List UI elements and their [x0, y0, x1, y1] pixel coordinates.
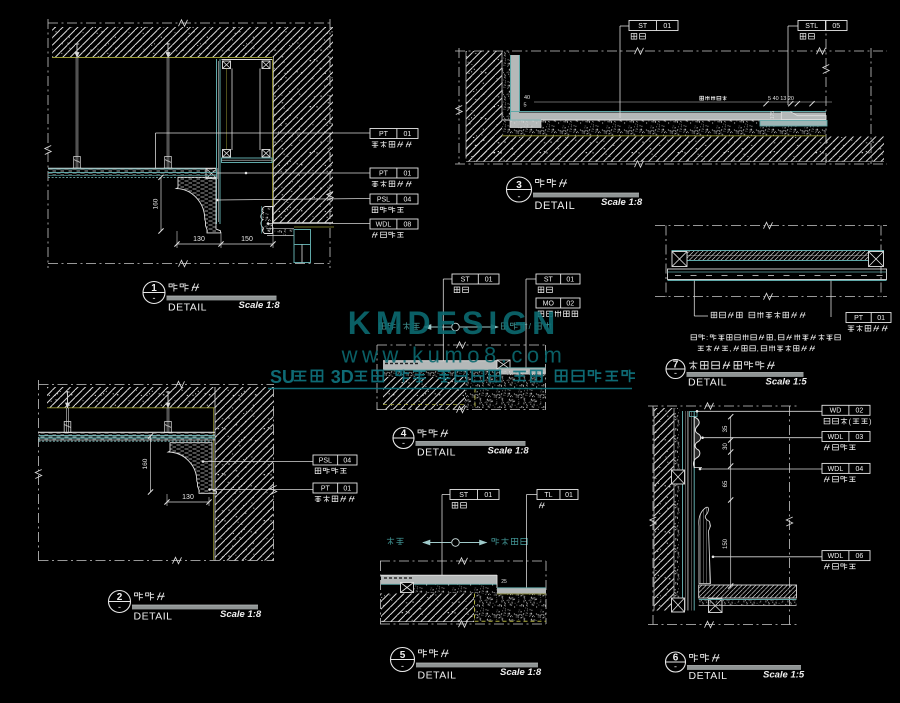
svg-text:STL: STL [805, 23, 818, 30]
svg-text:40: 40 [524, 95, 530, 101]
svg-text:DETAIL: DETAIL [688, 377, 727, 389]
svg-text:5 40 13 20: 5 40 13 20 [768, 96, 794, 102]
svg-text:01: 01 [565, 492, 573, 499]
svg-text:-: - [674, 662, 677, 672]
svg-text:130: 130 [182, 494, 194, 501]
svg-text:02: 02 [856, 408, 864, 415]
svg-text:WDL: WDL [376, 221, 392, 228]
svg-text:04: 04 [404, 196, 412, 203]
svg-text:06: 06 [856, 553, 864, 560]
svg-text:PT: PT [379, 170, 389, 177]
svg-text:01: 01 [877, 315, 885, 322]
svg-text:-: - [402, 438, 405, 448]
svg-text:01: 01 [404, 170, 412, 177]
svg-text:35: 35 [723, 425, 729, 432]
svg-text:ST: ST [459, 492, 469, 499]
svg-text:5: 5 [523, 103, 526, 109]
svg-text:DETAIL: DETAIL [134, 611, 173, 623]
svg-text:01: 01 [404, 131, 412, 138]
svg-text:PT: PT [854, 315, 864, 322]
svg-text:ST: ST [544, 276, 554, 283]
svg-text:175: 175 [770, 111, 776, 120]
svg-text:04: 04 [856, 466, 864, 473]
svg-text:DETAIL: DETAIL [535, 200, 576, 212]
svg-text:Scale 1:8: Scale 1:8 [220, 609, 262, 620]
svg-text:01: 01 [485, 276, 493, 283]
svg-text:KMDESIGN: KMDESIGN [348, 305, 560, 341]
svg-text:PT: PT [321, 485, 331, 492]
svg-text:150: 150 [723, 538, 729, 549]
svg-text:25: 25 [501, 579, 507, 585]
svg-text:01: 01 [484, 492, 492, 499]
svg-text:-: - [401, 661, 404, 671]
svg-text:WDL: WDL [828, 553, 844, 560]
svg-text:Scale 1:8: Scale 1:8 [239, 300, 281, 311]
svg-text:PSL: PSL [319, 457, 332, 464]
svg-text:ST: ST [638, 23, 648, 30]
svg-text:01: 01 [663, 23, 671, 30]
svg-text:01: 01 [343, 485, 351, 492]
svg-text:SU: SU [270, 367, 295, 387]
svg-text:-: - [518, 192, 521, 202]
svg-text:PSL: PSL [377, 196, 390, 203]
svg-text:130: 130 [193, 236, 205, 243]
svg-text:,: , [729, 344, 731, 353]
svg-text:WDL: WDL [828, 434, 844, 441]
svg-text:DETAIL: DETAIL [689, 670, 728, 682]
svg-text:DETAIL: DETAIL [168, 302, 207, 314]
svg-text:Scale 1:8: Scale 1:8 [488, 446, 530, 457]
svg-text:Scale 1:5: Scale 1:5 [763, 670, 805, 681]
svg-text:160: 160 [142, 458, 149, 469]
svg-text:PT: PT [379, 131, 389, 138]
svg-text:,: , [757, 344, 759, 353]
svg-text:65: 65 [723, 480, 729, 487]
svg-text:WDL: WDL [828, 466, 844, 473]
svg-text:Scale 1:5: Scale 1:5 [766, 377, 808, 388]
svg-text:,: , [774, 333, 776, 342]
svg-text:150: 150 [241, 236, 253, 243]
svg-text:-: - [153, 293, 156, 303]
svg-text:03: 03 [856, 434, 864, 441]
svg-text:www.kumo8.com: www.kumo8.com [341, 343, 567, 368]
svg-text:01: 01 [566, 276, 574, 283]
svg-text:-: - [674, 368, 677, 378]
svg-text:ST: ST [461, 276, 471, 283]
svg-text:-: - [118, 602, 121, 612]
svg-text:30: 30 [723, 443, 729, 450]
svg-text:TL: TL [544, 492, 552, 499]
svg-text:WD: WD [830, 408, 842, 415]
svg-text:05: 05 [832, 23, 840, 30]
svg-text:160: 160 [153, 198, 160, 209]
svg-text:DETAIL: DETAIL [418, 670, 457, 682]
svg-text:04: 04 [343, 457, 351, 464]
svg-text:5: 5 [400, 650, 406, 661]
svg-text:DETAIL: DETAIL [417, 447, 456, 459]
svg-text:3D: 3D [331, 367, 354, 387]
svg-text:3: 3 [516, 180, 522, 191]
svg-text:Scale 1:8: Scale 1:8 [500, 667, 542, 678]
svg-text::: : [706, 333, 708, 342]
svg-text:Scale 1:8: Scale 1:8 [601, 197, 643, 208]
svg-text:02: 02 [566, 300, 574, 307]
svg-text:08: 08 [404, 221, 412, 228]
